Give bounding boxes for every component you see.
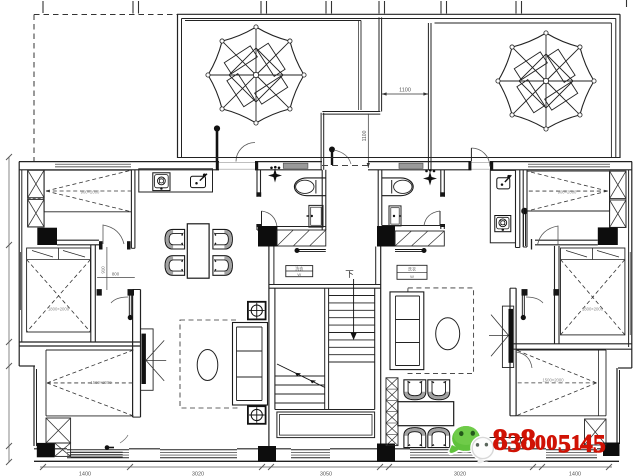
- svg-text:下: 下: [345, 269, 354, 279]
- svg-text:W: W: [410, 274, 414, 279]
- svg-text:3050: 3050: [320, 472, 332, 476]
- svg-text:W: W: [297, 272, 301, 277]
- svg-text:5: 5: [558, 429, 571, 458]
- svg-text:洗衣: 洗衣: [295, 265, 303, 271]
- svg-text:8: 8: [521, 423, 536, 457]
- svg-text:800: 800: [112, 271, 120, 276]
- svg-text:0: 0: [535, 431, 546, 455]
- svg-text:1100: 1100: [362, 130, 368, 141]
- svg-text:洗衣: 洗衣: [408, 266, 416, 272]
- svg-text:900×2000: 900×2000: [558, 190, 577, 195]
- svg-text:1400: 1400: [569, 472, 581, 476]
- svg-text:1800×2000: 1800×2000: [582, 307, 604, 312]
- svg-text:3020: 3020: [192, 472, 204, 476]
- svg-text:0: 0: [547, 431, 558, 455]
- svg-text:910: 910: [101, 266, 106, 274]
- svg-text:3020: 3020: [454, 472, 466, 476]
- svg-text:5: 5: [593, 429, 606, 458]
- svg-text:8: 8: [493, 423, 508, 457]
- svg-text:3: 3: [508, 427, 522, 458]
- svg-text:1100: 1100: [399, 88, 411, 94]
- svg-text:1800×2000: 1800×2000: [48, 307, 70, 312]
- svg-text:1500×2000: 1500×2000: [542, 378, 564, 383]
- svg-text:1400: 1400: [79, 472, 91, 476]
- svg-text:900×2000: 900×2000: [81, 190, 100, 195]
- svg-text:1500×2000: 1500×2000: [90, 380, 112, 385]
- svg-text:4: 4: [580, 429, 593, 458]
